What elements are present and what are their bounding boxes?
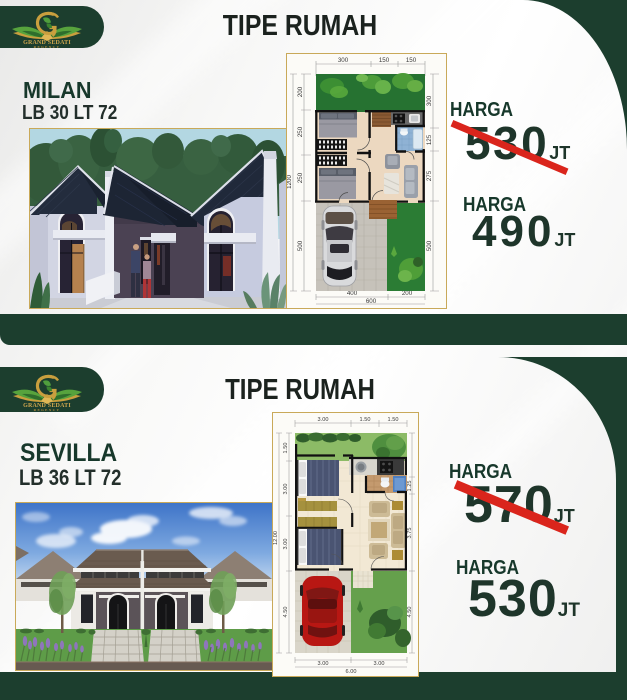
svg-text:150: 150 (379, 57, 390, 64)
svg-text:3.00: 3.00 (374, 661, 385, 667)
svg-text:150: 150 (406, 57, 417, 64)
svg-text:300: 300 (426, 95, 433, 106)
svg-text:125: 125 (426, 134, 433, 145)
svg-text:3.00: 3.00 (318, 661, 329, 667)
svg-text:600: 600 (366, 298, 377, 305)
svg-text:1.50: 1.50 (388, 417, 399, 423)
svg-text:300: 300 (338, 57, 349, 64)
svg-text:1.50: 1.50 (283, 443, 289, 454)
svg-text:REGENCY: REGENCY (34, 45, 61, 48)
svg-text:250: 250 (297, 126, 304, 137)
svg-text:3.75: 3.75 (407, 528, 413, 539)
svg-text:500: 500 (297, 240, 304, 251)
svg-text:4.50: 4.50 (283, 607, 289, 618)
svg-text:400: 400 (347, 290, 358, 297)
svg-text:3.00: 3.00 (283, 484, 289, 495)
svg-text:12.00: 12.00 (273, 531, 279, 545)
svg-text:6.00: 6.00 (346, 669, 357, 675)
svg-text:500: 500 (426, 240, 433, 251)
svg-text:4.50: 4.50 (407, 607, 413, 618)
svg-text:200: 200 (402, 290, 413, 297)
svg-text:275: 275 (426, 170, 433, 181)
svg-text:1200: 1200 (286, 175, 293, 189)
svg-text:3.00: 3.00 (283, 539, 289, 550)
svg-text:250: 250 (297, 172, 304, 183)
svg-text:1.25: 1.25 (407, 481, 413, 492)
svg-text:REGENCY: REGENCY (34, 408, 61, 412)
svg-text:200: 200 (297, 86, 304, 97)
svg-text:1.50: 1.50 (360, 417, 371, 423)
svg-text:3.00: 3.00 (318, 417, 329, 423)
